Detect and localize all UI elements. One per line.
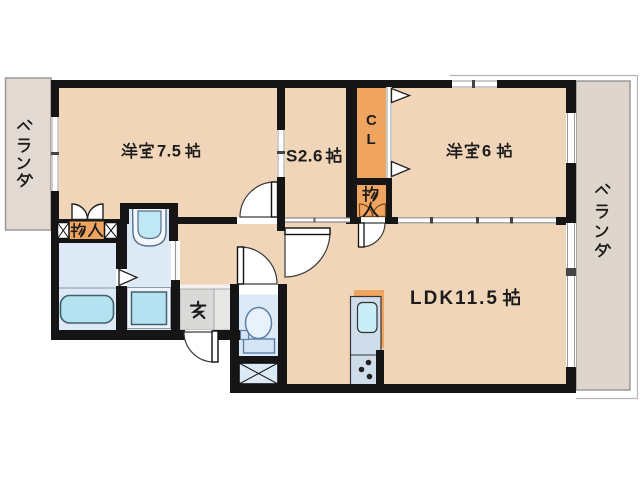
svg-text:L: L (367, 131, 376, 148)
svg-text:7.5: 7.5 (157, 143, 181, 161)
svg-text:C: C (366, 112, 377, 129)
svg-text:S2.6: S2.6 (286, 147, 323, 166)
svg-text:6: 6 (482, 143, 491, 161)
svg-text:LDK11.5: LDK11.5 (410, 288, 499, 309)
